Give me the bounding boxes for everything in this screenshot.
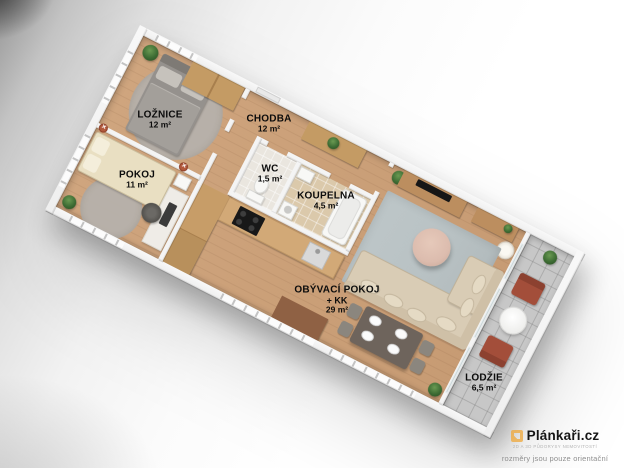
disclaimer-text: rozměry jsou pouze orientační xyxy=(491,454,619,463)
brand-name: Plánkaři.cz xyxy=(527,428,600,443)
room-area: 12 m² xyxy=(246,125,291,135)
room-label-chodba: CHODBA 12 m² xyxy=(246,114,291,135)
room-area: 4,5 m² xyxy=(297,202,355,212)
room-label-loznice: LOŽNICE 12 m² xyxy=(137,110,182,131)
room-name: OBÝVACÍ POKOJ xyxy=(294,285,379,296)
room-area: 29 m² xyxy=(294,306,379,316)
plankari-logo-icon xyxy=(511,430,523,442)
room-label-lodzie: LODŽIE 6,5 m² xyxy=(465,373,503,394)
room-label-koupelna: KOUPELNA 4,5 m² xyxy=(297,191,355,212)
apartment-3d-plan: ✕ ✕ xyxy=(45,25,585,438)
room-area: 12 m² xyxy=(137,121,182,131)
room-label-obyvaci-pokoj: OBÝVACÍ POKOJ + KK 29 m² xyxy=(294,285,379,316)
room-label-pokoj: POKOJ 11 m² xyxy=(119,170,155,191)
room-area: 1,5 m² xyxy=(258,175,283,185)
floorplan-scene: ✕ ✕ LOŽNICE 12 m² POKOJ 11 m² CHODBA 12 … xyxy=(0,0,624,468)
brand-row: Plánkaři.cz xyxy=(491,428,619,443)
room-area: 6,5 m² xyxy=(465,384,503,394)
watermark: Plánkaři.cz 2D A 3D PŮDORYSY NEMOVITOSTÍ… xyxy=(491,428,619,463)
room-label-wc: WC 1,5 m² xyxy=(258,164,283,185)
room-area: 11 m² xyxy=(119,181,155,191)
brand-tagline: 2D A 3D PŮDORYSY NEMOVITOSTÍ xyxy=(491,444,619,449)
